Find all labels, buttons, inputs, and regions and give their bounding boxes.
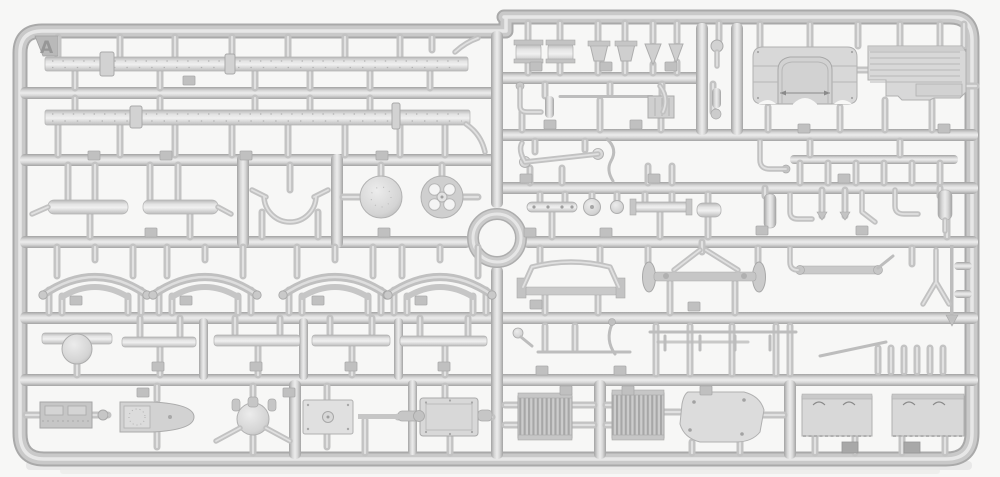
spare-wheel-disc	[421, 176, 463, 218]
sprue-photo: A	[0, 0, 1000, 477]
sprue-letter-tab-label: A	[40, 38, 54, 58]
sprue-illustration: A	[0, 0, 1000, 477]
brake-drum-disc	[360, 176, 402, 218]
fuel-tank	[680, 392, 764, 442]
gearbox	[120, 402, 194, 432]
differential-housing	[62, 334, 92, 364]
radiator-2	[612, 390, 664, 440]
mounting-plate	[303, 400, 353, 434]
cab-rear-panel	[753, 47, 857, 107]
radiator-1	[518, 393, 572, 440]
